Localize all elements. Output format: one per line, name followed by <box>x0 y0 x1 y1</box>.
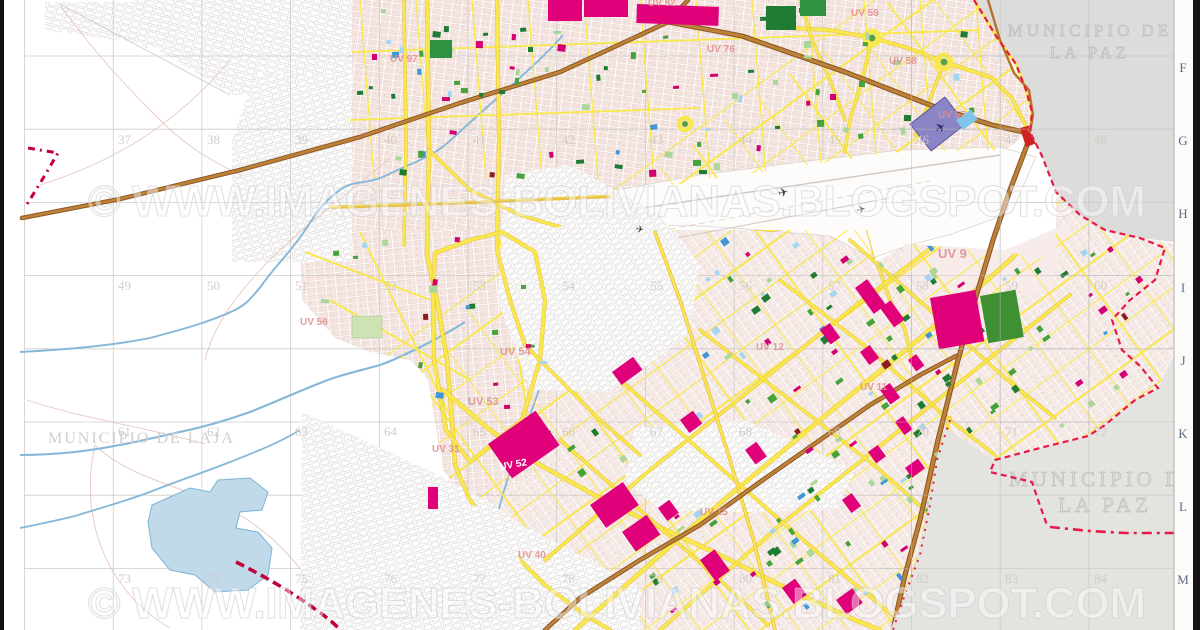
svg-text:52: 52 <box>384 278 397 293</box>
svg-text:UV 15: UV 15 <box>700 507 728 518</box>
svg-text:54: 54 <box>562 278 576 293</box>
svg-text:UV 97: UV 97 <box>390 54 418 65</box>
svg-text:48: 48 <box>1094 132 1107 147</box>
svg-text:F: F <box>1179 60 1186 75</box>
svg-text:47: 47 <box>1005 132 1019 147</box>
svg-text:UV 9: UV 9 <box>938 246 967 261</box>
svg-text:40: 40 <box>384 132 397 147</box>
svg-text:UV 54: UV 54 <box>500 346 531 358</box>
svg-text:57: 57 <box>828 278 842 293</box>
svg-text:UV 82: UV 82 <box>648 0 676 9</box>
svg-text:64: 64 <box>384 424 398 439</box>
svg-text:50: 50 <box>207 278 220 293</box>
svg-text:UV 40: UV 40 <box>518 550 546 561</box>
svg-text:61: 61 <box>118 424 131 439</box>
svg-text:G: G <box>1178 133 1187 148</box>
svg-text:UV 56: UV 56 <box>300 317 328 328</box>
svg-text:60: 60 <box>1094 278 1107 293</box>
svg-text:62: 62 <box>207 424 220 439</box>
svg-text:MUNICIPIO DE: MUNICIPIO DE <box>1009 467 1200 491</box>
svg-text:70: 70 <box>916 424 929 439</box>
svg-text:41: 41 <box>473 132 486 147</box>
svg-text:66: 66 <box>562 424 576 439</box>
svg-text:67: 67 <box>650 424 664 439</box>
svg-text:J: J <box>1180 353 1185 368</box>
svg-text:UV 11: UV 11 <box>860 382 888 393</box>
svg-text:51: 51 <box>295 278 308 293</box>
svg-text:68: 68 <box>739 424 752 439</box>
svg-text:UV 58: UV 58 <box>889 56 917 67</box>
svg-text:39: 39 <box>295 132 308 147</box>
svg-text:LA PAZ: LA PAZ <box>1050 43 1131 62</box>
svg-text:65: 65 <box>473 424 486 439</box>
svg-text:45: 45 <box>828 132 841 147</box>
svg-text:72: 72 <box>1094 424 1107 439</box>
svg-text:I: I <box>1181 280 1185 295</box>
svg-text:UV 59: UV 59 <box>851 8 879 19</box>
svg-text:58: 58 <box>916 278 929 293</box>
svg-text:MUNICIPIO DE: MUNICIPIO DE <box>1008 21 1173 40</box>
svg-text:63: 63 <box>295 424 308 439</box>
svg-text:46: 46 <box>916 132 930 147</box>
svg-text:37: 37 <box>118 132 132 147</box>
svg-text:38: 38 <box>207 132 220 147</box>
svg-text:UV 53: UV 53 <box>468 396 499 408</box>
svg-text:H: H <box>1178 206 1187 221</box>
svg-text:L: L <box>1179 499 1187 514</box>
svg-text:43: 43 <box>650 132 663 147</box>
svg-text:M: M <box>1177 572 1189 587</box>
svg-text:69: 69 <box>828 424 841 439</box>
svg-text:UV 57: UV 57 <box>938 110 966 121</box>
svg-text:UV 12: UV 12 <box>756 342 784 353</box>
svg-text:K: K <box>1178 426 1188 441</box>
svg-text:55: 55 <box>650 278 663 293</box>
svg-text:UV 31: UV 31 <box>432 444 460 455</box>
svg-text:59: 59 <box>1005 278 1018 293</box>
svg-text:53: 53 <box>473 278 486 293</box>
svg-text:© WWW.IMAGENES-BOLIVIANAS.BLOG: © WWW.IMAGENES-BOLIVIANAS.BLOGSPOT.COM <box>88 579 1146 628</box>
svg-text:LA PAZ: LA PAZ <box>1058 493 1152 517</box>
svg-text:44: 44 <box>739 132 753 147</box>
svg-text:UV 76: UV 76 <box>707 44 735 55</box>
svg-text:71: 71 <box>1005 424 1018 439</box>
svg-text:© WWW.IMAGENES-BOLIVIANAS.BLOG: © WWW.IMAGENES-BOLIVIANAS.BLOGSPOT.COM <box>88 177 1146 226</box>
svg-text:49: 49 <box>118 278 131 293</box>
svg-text:42: 42 <box>562 132 575 147</box>
svg-text:56: 56 <box>739 278 753 293</box>
